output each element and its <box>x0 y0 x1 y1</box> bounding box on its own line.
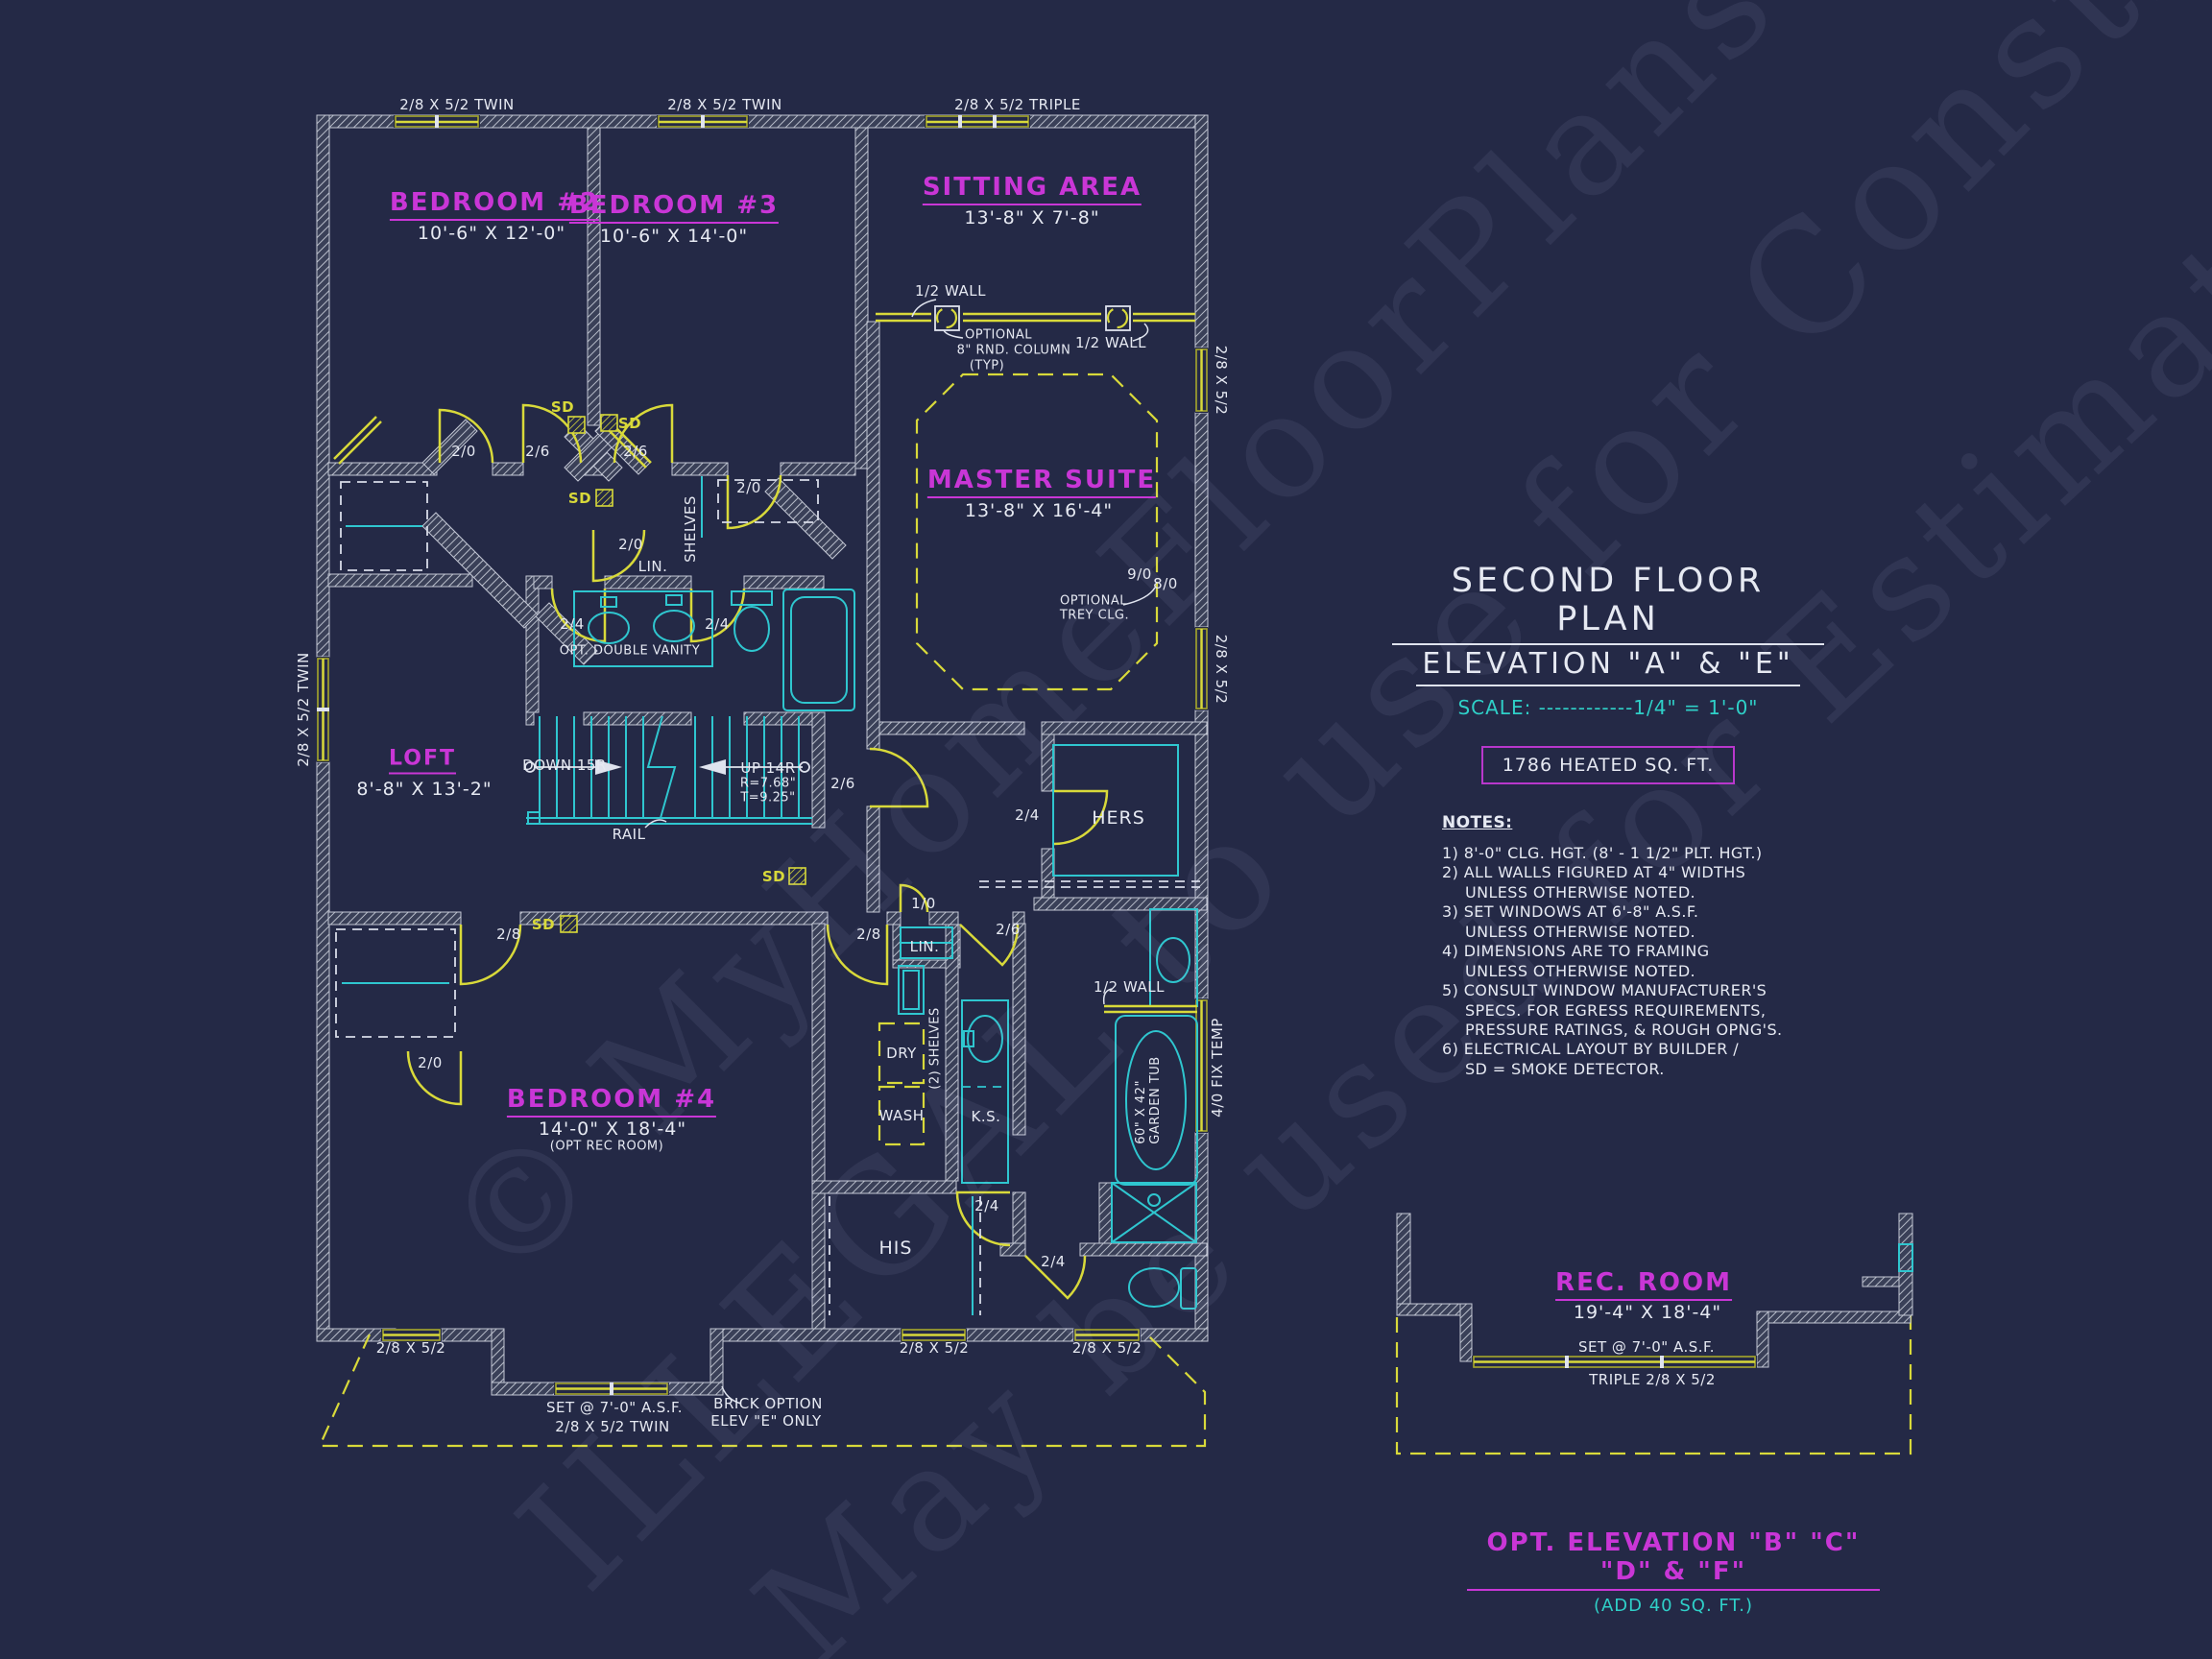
sheet-subtitle: ELEVATION "A" & "E" <box>1416 647 1799 686</box>
half-wall-label-3: 1/2 WALL <box>1094 978 1165 996</box>
door-label: 2/4 <box>705 615 730 633</box>
room-label-bedroom4: BEDROOM #4 <box>507 1085 716 1118</box>
garden-tub-name: GARDEN TUB <box>1148 1056 1163 1143</box>
window-label-bottom-3: 2/8 X 5/2 <box>1072 1339 1142 1357</box>
optional-column-label-1: OPTIONAL <box>965 328 1032 343</box>
window-label-bottom-2: 2/8 X 5/2 <box>900 1339 970 1357</box>
door-label: 2/0 <box>418 1054 443 1071</box>
note-line: PRESSURE RATINGS, & ROUGH OPNG'S. <box>1442 1021 1824 1040</box>
bay-window-twin-label: 2/8 X 5/2 TWIN <box>555 1418 670 1435</box>
note-line: SPECS. FOR EGRESS REQUIREMENTS, <box>1442 1001 1824 1021</box>
note-line: 2) ALL WALLS FIGURED AT 4" WIDTHS <box>1442 863 1824 882</box>
half-wall-label-1: 1/2 WALL <box>915 282 986 300</box>
note-line: UNLESS OTHERWISE NOTED. <box>1442 883 1824 902</box>
appliance-label-washer: WASH <box>878 1107 924 1124</box>
appliance-label-dryer: DRY <box>886 1045 917 1062</box>
half-wall-label-2: 1/2 WALL <box>1075 334 1146 351</box>
room-dims-master-suite: 13'-8" X 16'-4" <box>965 500 1113 521</box>
window-label-left-twin: 2/8 X 5/2 TWIN <box>295 652 312 767</box>
notes-list: NOTES: 1) 8'-0" CLG. HGT. (8' - 1 1/2" P… <box>1442 813 1824 1079</box>
stair-tread-label: T=9.25" <box>740 791 795 805</box>
stair-rise-label: R=7.68" <box>740 777 796 791</box>
opt-elevation-note: OPT. ELEVATION "B" "C" "D" & "F" (ADD 40… <box>1467 1528 1880 1616</box>
bay-window-set-label: SET @ 7'-0" A.S.F. <box>546 1399 683 1416</box>
note-line: 3) SET WINDOWS AT 6'-8" A.S.F. <box>1442 902 1824 922</box>
room-dims-rec-room: 19'-4" X 18'-4" <box>1574 1302 1721 1323</box>
fixture-label-ks: K.S. <box>972 1108 1001 1125</box>
note-line: UNLESS OTHERWISE NOTED. <box>1442 962 1824 981</box>
door-label: 2/0 <box>618 536 643 553</box>
closet-label-hers: HERS <box>1092 807 1145 829</box>
window-label-right-1: 2/8 X 5/2 <box>1213 346 1230 416</box>
door-label: 1/0 <box>911 895 936 912</box>
note-line: 1) 8'-0" CLG. HGT. (8' - 1 1/2" PLT. HGT… <box>1442 844 1824 863</box>
room-dims-bedroom3: 10'-6" X 14'-0" <box>600 226 748 247</box>
closet-label-linen-lower: LIN. <box>910 938 940 955</box>
door-label: 2/6 <box>996 921 1021 938</box>
blueprint-page: © MyHomeFloorPlans.com ILLEGAL to use fo… <box>0 0 2212 1659</box>
room-label-rec-room: REC. ROOM <box>1555 1268 1732 1301</box>
window-label-triple: 2/8 X 5/2 TRIPLE <box>954 96 1081 113</box>
garden-tub-label: 60" X 42" GARDEN TUB <box>1134 1056 1163 1143</box>
heated-sqft-box: 1786 HEATED SQ. FT. <box>1481 746 1736 784</box>
room-dims-bedroom2: 10'-6" X 12'-0" <box>418 223 565 244</box>
vanity-label: OPT. DOUBLE VANITY <box>560 644 700 659</box>
half-wall-and-columns <box>876 300 1195 341</box>
sd-label: SD <box>568 490 591 507</box>
note-line: 5) CONSULT WINDOW MANUFACTURER'S <box>1442 981 1824 1000</box>
door-label: 2/4 <box>560 615 585 633</box>
notes-heading: NOTES: <box>1442 813 1824 834</box>
opt-elevation-title: OPT. ELEVATION "B" "C" "D" & "F" <box>1467 1528 1880 1591</box>
room-sub-bedroom4: (OPT REC ROOM) <box>550 1140 663 1154</box>
closet-label-shelves: SHELVES <box>682 495 699 563</box>
door-label: 2/0 <box>451 443 476 460</box>
note-line: UNLESS OTHERWISE NOTED. <box>1442 923 1824 942</box>
optional-column-label-3: (TYP) <box>970 359 1004 373</box>
room-label-bedroom3: BEDROOM #3 <box>569 191 779 224</box>
door-label: 2/4 <box>1015 806 1040 824</box>
room-label-loft: LOFT <box>389 747 456 775</box>
door-label: 2/6 <box>623 443 648 460</box>
window-label-right-2: 2/8 X 5/2 <box>1213 635 1230 705</box>
room-label-master-suite: MASTER SUITE <box>927 466 1156 498</box>
door-label: 2/8 <box>856 926 881 943</box>
room-dims-sitting-area: 13'-8" X 7'-8" <box>964 207 1099 228</box>
trey-clg-label-2: TREY CLG. <box>1060 609 1129 623</box>
stair-up-label: UP 14R <box>740 759 795 777</box>
note-line: 4) DIMENSIONS ARE TO FRAMING <box>1442 942 1824 961</box>
trey-height-label-90: 9/0 <box>1127 565 1152 583</box>
garden-tub-size: 60" X 42" <box>1134 1056 1148 1143</box>
optional-column-label-2: 8" RND. COLUMN <box>957 344 1071 358</box>
door-label: 2/8 <box>496 926 521 943</box>
room-dims-bedroom4: 14'-0" X 18'-4" <box>539 1118 686 1140</box>
rail-label: RAIL <box>613 826 646 843</box>
door-label: 2/0 <box>736 479 761 496</box>
door-label: 2/4 <box>1041 1253 1066 1270</box>
room-label-bedroom2: BEDROOM #2 <box>390 188 599 221</box>
room-dims-loft: 8'-8" X 13'-2" <box>356 779 492 800</box>
title-block: SECOND FLOOR PLAN ELEVATION "A" & "E" SC… <box>1392 562 1824 1079</box>
note-line: 6) ELECTRICAL LAYOUT BY BUILDER / <box>1442 1040 1824 1059</box>
room-label-sitting-area: SITTING AREA <box>923 173 1142 205</box>
window-label-twin-1: 2/8 X 5/2 TWIN <box>399 96 515 113</box>
brick-option-label-2: ELEV "E" ONLY <box>710 1412 821 1430</box>
scale-note: SCALE: ------------1/4" = 1'-0" <box>1392 696 1824 719</box>
brick-option-label-1: BRICK OPTION <box>713 1395 823 1412</box>
sheet-title: SECOND FLOOR PLAN <box>1392 562 1824 645</box>
door-label: 2/6 <box>830 775 855 792</box>
sd-label: SD <box>551 398 574 416</box>
window-label-fix-temp: 4/0 FIX TEMP <box>1209 1018 1226 1118</box>
window-label-twin-2: 2/8 X 5/2 TWIN <box>667 96 782 113</box>
closet-label-his: HIS <box>879 1238 913 1259</box>
stair-down-label: DOWN 15R <box>522 757 607 774</box>
note-line: SD = SMOKE DETECTOR. <box>1442 1060 1824 1079</box>
window-label-bottom-1: 2/8 X 5/2 <box>376 1339 446 1357</box>
rec-window-set-label: SET @ 7'-0" A.S.F. <box>1578 1338 1715 1356</box>
sd-label: SD <box>618 415 641 432</box>
closet-label-2-shelves: (2) SHELVES <box>928 1007 943 1089</box>
door-label: 2/4 <box>974 1197 999 1214</box>
sd-label: SD <box>532 916 555 933</box>
sd-label: SD <box>762 868 785 885</box>
closet-label-linen-upper: LIN. <box>638 558 668 575</box>
trey-clg-label-1: OPTIONAL <box>1060 594 1127 609</box>
trey-height-label-80: 8/0 <box>1153 575 1178 592</box>
opt-elevation-sqft: (ADD 40 SQ. FT.) <box>1467 1596 1880 1616</box>
door-label: 2/6 <box>525 443 550 460</box>
rec-window-triple-label: TRIPLE 2/8 X 5/2 <box>1589 1371 1716 1388</box>
